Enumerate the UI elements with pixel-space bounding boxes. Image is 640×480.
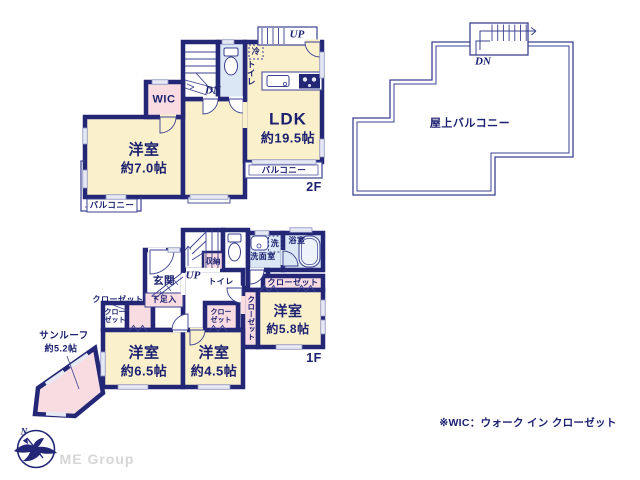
toilet-icon-2f [224,48,238,75]
closet-58-left-label: クローゼット [247,296,255,341]
yoshitsu65-area: 約6.5帖 [121,365,168,378]
north-label: N [21,428,28,437]
yoshitsu7-area: 約7.0帖 [121,162,168,175]
up-label-2f: UP [290,30,305,41]
fridge-label: 冷 [252,48,261,56]
closet-65-label: クローゼット [104,309,127,325]
toilet-icon-1f [228,234,241,261]
storage-label: 収納 [205,257,221,265]
yoshitsu7-name: 洋室 [128,143,159,158]
yoshitsu65-name: 洋室 [128,346,159,361]
closet-45-label: クローゼット [210,309,233,325]
washer-label: 洗 [271,240,280,248]
toilet-label-1f: トイレ [208,278,234,286]
yoshitsu58-name: 洋室 [274,304,303,318]
sunroof-name: サンルーフ [39,331,88,341]
stairs-roof [470,23,536,55]
genkan-label: 玄関 [153,276,175,287]
roof-balcony-label: 屋上バルコニー [430,119,510,130]
closet-58-top-label: クローゼット [268,279,319,287]
yoshitsu45-name: 洋室 [198,346,229,361]
closet-65-pointer-label: クローゼット [93,296,144,304]
shoe-box-label: 下足入 [151,296,177,304]
bathroom-label: 浴室 [289,237,306,245]
balcony-right-label-2f: バルコニー [262,166,307,175]
room-ldk-lower [183,99,245,197]
dn-label-roof: DN [475,57,491,68]
washroom-label: 洗面室 [250,253,276,261]
sunroof-area: 約5.2帖 [44,345,77,354]
floorplan-drawing [0,0,640,480]
floor2-label: 2F [306,181,322,194]
roof-balcony-plan [353,23,573,195]
kitchen-counter [262,72,322,90]
washroom-sink [251,236,268,250]
kitchen-sink [267,76,289,87]
ldk-name: LDK [269,111,307,128]
floorplan-canvas: WIC 洋室 約7.0帖 LDK 約19.5帖 トイレ 冷 DN UP バルコニ… [0,0,640,480]
yoshitsu58-area: 約5.8帖 [266,323,309,335]
floor1-label: 1F [306,352,322,365]
sunroof [35,348,103,416]
dn-label-2f: DN [205,86,221,97]
wic-note: ※WIC：ウォーク イン クローゼット [439,418,616,429]
wic-label: WIC [153,95,176,106]
up-label-1f: UP [186,271,201,282]
company-logo-text: ME Group [60,452,135,466]
ldk-area: 約19.5帖 [261,132,315,145]
toilet-label-2f: トイレ [247,60,256,86]
balcony-left-label-2f: バルコニー [90,201,135,210]
yoshitsu45-area: 約4.5帖 [191,365,238,378]
